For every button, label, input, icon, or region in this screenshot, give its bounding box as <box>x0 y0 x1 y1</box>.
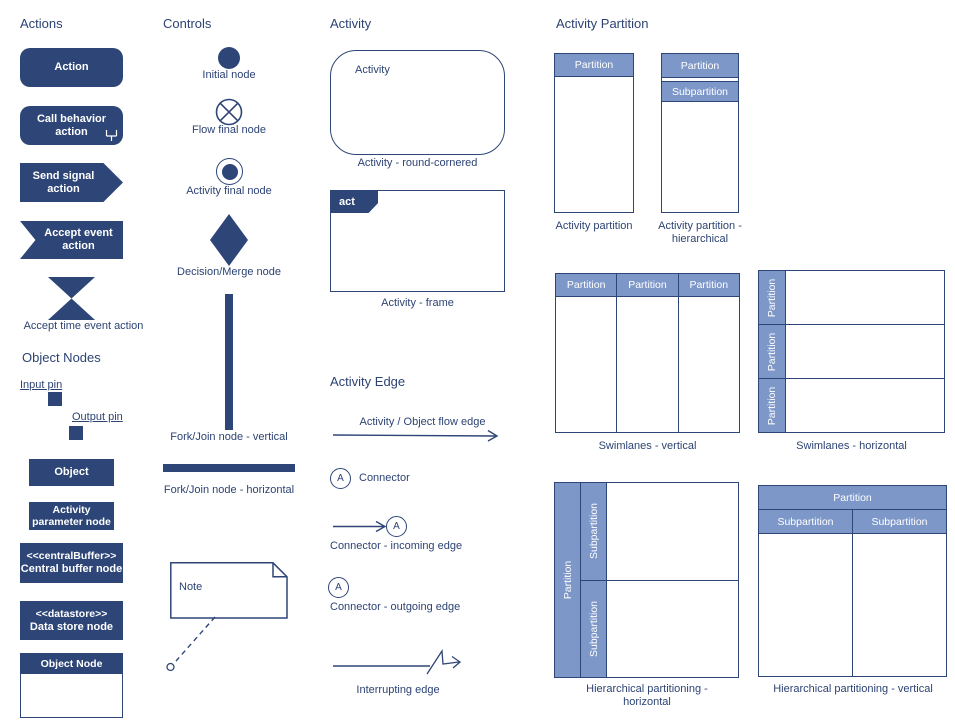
caption-output-pin: Output pin <box>72 411 123 424</box>
section-heading-activity-edge: Activity Edge <box>330 374 405 389</box>
caption-activity-partition: Activity partition <box>544 220 644 233</box>
central-buffer-stereotype: <<centralBuffer>> <box>27 550 117 563</box>
swimlane-row-header-label: Partition <box>766 386 778 425</box>
shape-data-store-node[interactable]: <<datastore>> Data store node <box>20 601 123 640</box>
caption-initial-node: Initial node <box>189 69 269 82</box>
connector-letter: A <box>337 473 344 484</box>
shape-fork-join-vertical[interactable] <box>225 294 233 430</box>
section-heading-activity-partition: Activity Partition <box>556 16 648 31</box>
object-node-label: Object Node <box>41 658 103 671</box>
swimlane-row-header: Partition <box>759 271 786 324</box>
caption-activity-partition-hierarchical: Activity partition - hierarchical <box>650 220 750 246</box>
caption-swimlanes-horizontal: Swimlanes - horizontal <box>758 440 945 453</box>
shape-object-node[interactable]: Object Node <box>20 653 123 718</box>
swimlane-column-header-label: Partition <box>628 279 667 291</box>
shape-send-signal-label: Send signal action <box>20 170 107 196</box>
caption-connector: Connector <box>359 472 410 485</box>
activity-partition-header: Partition <box>555 54 633 77</box>
swimlane-row: Partition <box>759 271 944 325</box>
shape-note[interactable]: Note <box>170 562 288 619</box>
shape-activity-final-node[interactable] <box>216 158 243 185</box>
shape-connector[interactable]: A <box>330 468 351 489</box>
hier-h-partition-label: Partition <box>562 561 574 600</box>
caption-hierarchical-partitioning-vertical: Hierarchical partitioning - vertical <box>768 683 938 696</box>
shape-activity-round-cornered[interactable]: Activity <box>330 50 505 155</box>
shape-action[interactable]: Action <box>20 48 123 87</box>
shape-hierarchical-partitioning-vertical[interactable]: Partition Subpartition Subpartition <box>758 485 947 677</box>
hier-v-subpartition-header: Subpartition <box>759 510 852 534</box>
shape-swimlanes-horizontal[interactable]: Partition Partition Partition <box>758 270 945 433</box>
shape-accept-event-action[interactable]: Accept event action <box>20 221 123 259</box>
caption-accept-time-event: Accept time event action <box>6 320 161 333</box>
shape-input-pin[interactable] <box>48 392 62 406</box>
hier-v-subpartition-header: Subpartition <box>853 510 946 534</box>
swimlane-column-header-label: Partition <box>690 279 729 291</box>
section-heading-activity: Activity <box>330 16 371 31</box>
swimlane-row-header-label: Partition <box>766 332 778 371</box>
caption-fork-join-vertical: Fork/Join node - vertical <box>154 431 304 444</box>
note-label: Note <box>179 581 202 594</box>
swimlane-row-header-label: Partition <box>766 278 778 317</box>
note-connector-line <box>160 612 225 674</box>
shape-flow-edge[interactable] <box>333 428 505 444</box>
hier-h-row: Subpartition <box>581 581 738 678</box>
hier-v-column: Subpartition <box>759 510 853 676</box>
shape-fork-join-horizontal[interactable] <box>163 464 295 472</box>
hier-v-subpartition-label: Subpartition <box>777 516 833 528</box>
shape-initial-node[interactable] <box>218 47 240 69</box>
shape-swimlanes-vertical[interactable]: Partition Partition Partition <box>555 273 740 433</box>
hier-partition-header: Partition <box>662 54 738 78</box>
shape-hierarchical-partitioning-horizontal[interactable]: Partition Subpartition Subpartition <box>554 482 739 678</box>
shape-activity-partition-hierarchical[interactable]: Partition Subpartition <box>661 53 739 213</box>
connector-outgoing-letter: A <box>335 582 342 593</box>
caption-activity-round-cornered: Activity - round-cornered <box>330 157 505 170</box>
shape-connector-outgoing[interactable]: A <box>328 577 349 598</box>
shape-accept-event-label: Accept event action <box>34 227 123 253</box>
uml-activity-shape-library: Actions Action Call behavior action Send… <box>0 0 955 726</box>
activity-frame-tab-label: act <box>339 196 355 208</box>
hier-v-column: Subpartition <box>853 510 946 676</box>
datastore-label: Data store node <box>30 621 113 634</box>
hier-h-subpartition-label: Subpartition <box>588 503 600 559</box>
caption-hierarchical-partitioning-horizontal: Hierarchical partitioning - horizontal <box>562 683 732 709</box>
hier-subpartition-header-label: Subpartition <box>672 86 728 98</box>
caption-fork-join-horizontal: Fork/Join node - horizontal <box>149 484 309 497</box>
connector-incoming-arrow <box>333 520 388 533</box>
hier-subpartition-header: Subpartition <box>662 81 738 102</box>
activity-partition-header-label: Partition <box>575 59 614 71</box>
datastore-stereotype: <<datastore>> <box>36 608 108 621</box>
hier-h-subpartition-header: Subpartition <box>581 581 607 678</box>
caption-input-pin: Input pin <box>20 379 62 392</box>
caption-activity-frame: Activity - frame <box>330 297 505 310</box>
shape-object[interactable]: Object <box>29 459 114 486</box>
swimlane-column-header: Partition <box>617 274 677 297</box>
rake-icon <box>104 129 119 142</box>
hier-v-partition-label: Partition <box>833 492 872 504</box>
swimlane-column-header-label: Partition <box>567 279 606 291</box>
shape-activity-parameter-label: Activity parameter node <box>29 504 114 529</box>
shape-object-label: Object <box>54 466 88 479</box>
hier-h-row: Subpartition <box>581 483 738 581</box>
shape-call-behavior-action[interactable]: Call behavior action <box>20 106 123 145</box>
caption-decision-merge-node: Decision/Merge node <box>164 266 294 279</box>
swimlane-column-header: Partition <box>679 274 739 297</box>
connector-incoming-letter: A <box>393 521 400 532</box>
activity-round-label: Activity <box>355 64 390 77</box>
hier-h-subpartition-header: Subpartition <box>581 483 607 580</box>
hier-h-partition-header: Partition <box>555 483 581 677</box>
caption-connector-outgoing: Connector - outgoing edge <box>330 601 460 614</box>
shape-send-signal-action[interactable]: Send signal action <box>20 163 123 202</box>
shape-activity-partition[interactable]: Partition <box>554 53 634 213</box>
shape-action-label: Action <box>54 61 88 74</box>
shape-accept-time-event-action[interactable] <box>48 277 95 320</box>
shape-flow-final-node[interactable] <box>215 98 243 126</box>
caption-flow-final-node: Flow final node <box>179 124 279 137</box>
caption-activity-final-node: Activity final node <box>169 185 289 198</box>
activity-frame-tab: act <box>331 191 378 213</box>
hier-v-partition-header: Partition <box>759 486 946 510</box>
swimlane-row-header: Partition <box>759 379 786 432</box>
shape-decision-merge-node[interactable] <box>210 214 248 266</box>
caption-connector-incoming: Connector - incoming edge <box>330 540 462 553</box>
swimlane-column: Partition <box>617 274 678 432</box>
swimlane-row: Partition <box>759 325 944 379</box>
central-buffer-label: Central buffer node <box>21 563 122 576</box>
shape-activity-frame[interactable]: act <box>330 190 505 292</box>
shape-connector-incoming[interactable]: A <box>386 516 407 537</box>
caption-interrupting-edge: Interrupting edge <box>332 684 464 697</box>
shape-output-pin[interactable] <box>69 426 83 440</box>
section-heading-controls: Controls <box>163 16 211 31</box>
swimlane-row-header: Partition <box>759 325 786 378</box>
shape-central-buffer-node[interactable]: <<centralBuffer>> Central buffer node <box>20 543 123 583</box>
hier-h-subpartition-label: Subpartition <box>588 601 600 657</box>
swimlane-column-header: Partition <box>556 274 616 297</box>
object-node-header: Object Node <box>21 654 122 674</box>
swimlane-column: Partition <box>679 274 739 432</box>
hier-partition-header-label: Partition <box>681 60 720 72</box>
swimlane-column: Partition <box>556 274 617 432</box>
swimlane-row: Partition <box>759 379 944 432</box>
section-heading-actions: Actions <box>20 16 63 31</box>
section-heading-object-nodes: Object Nodes <box>22 350 101 365</box>
hier-v-subpartition-label: Subpartition <box>871 516 927 528</box>
caption-swimlanes-vertical: Swimlanes - vertical <box>555 440 740 453</box>
shape-activity-parameter-node[interactable]: Activity parameter node <box>29 502 114 530</box>
activity-final-inner-dot <box>222 164 238 180</box>
shape-interrupting-edge[interactable] <box>332 646 464 678</box>
